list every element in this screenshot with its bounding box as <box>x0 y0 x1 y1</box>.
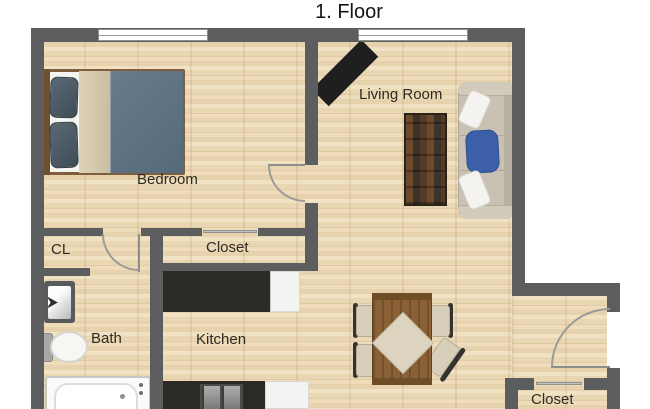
stove-door <box>202 386 220 409</box>
living-room-window <box>358 29 468 41</box>
blue-throw-pillow <box>465 129 500 174</box>
wall-cl-bottom <box>43 268 90 276</box>
dining-table-end-board <box>372 378 432 385</box>
page-title: 1. Floor <box>269 1 429 24</box>
sofa-armrest-bottom <box>458 205 514 219</box>
wall-step-horizontal <box>512 283 620 296</box>
wall-bedroom-living-upper <box>305 42 318 165</box>
room-label-kitchen: Kitchen <box>196 331 246 348</box>
room-label-bath: Bath <box>91 330 122 347</box>
hall-closet-sliding-door <box>203 230 257 233</box>
wall-exterior-left <box>31 28 44 409</box>
kitchen-counter-white <box>265 381 309 409</box>
bathtub-faucet <box>139 383 143 387</box>
bathtub-inner <box>54 383 138 409</box>
room-label-living-room: Living Room <box>359 86 442 103</box>
kitchen-counter-top <box>163 271 270 312</box>
bed-duvet <box>110 71 183 173</box>
window-pane-line <box>99 35 207 36</box>
floor-plan: 1. Floor Bedroom Living Room CL Closet B… <box>0 0 650 409</box>
bathtub-faucet <box>139 391 143 395</box>
chair-seat <box>430 305 450 337</box>
wall-closet-bottom <box>150 263 318 271</box>
bed-blanket <box>79 71 110 173</box>
stove-door <box>222 386 240 409</box>
toilet-bowl <box>50 331 88 363</box>
wall-exterior-right-upper <box>512 28 525 290</box>
room-label-bedroom: Bedroom <box>137 171 198 188</box>
wall-entry-closet-left <box>505 378 518 409</box>
wall-hall-top-left <box>31 228 103 236</box>
bedroom-window <box>98 29 208 41</box>
wall-entry-closet-top-right <box>584 378 610 390</box>
coffee-table <box>404 113 447 206</box>
dining-table-end-board <box>372 293 432 300</box>
room-label-cl: CL <box>51 241 70 258</box>
room-label-hall-closet: Closet <box>206 239 249 256</box>
sofa-armrest-top <box>458 82 514 96</box>
kitchen-refrigerator <box>270 271 300 312</box>
bed-pillow-top <box>49 77 78 119</box>
entry-closet-sliding-door <box>536 382 582 385</box>
room-label-entry-closet: Closet <box>531 391 574 408</box>
bed-headboard <box>43 69 50 175</box>
bed-pillow-bottom <box>49 122 79 169</box>
bathtub-drain <box>120 394 125 399</box>
window-pane-line <box>359 35 467 36</box>
wall-kitchen-bath <box>150 228 163 409</box>
wall-hall-top-right <box>258 228 318 236</box>
wall-bedroom-living-lower <box>305 203 318 271</box>
